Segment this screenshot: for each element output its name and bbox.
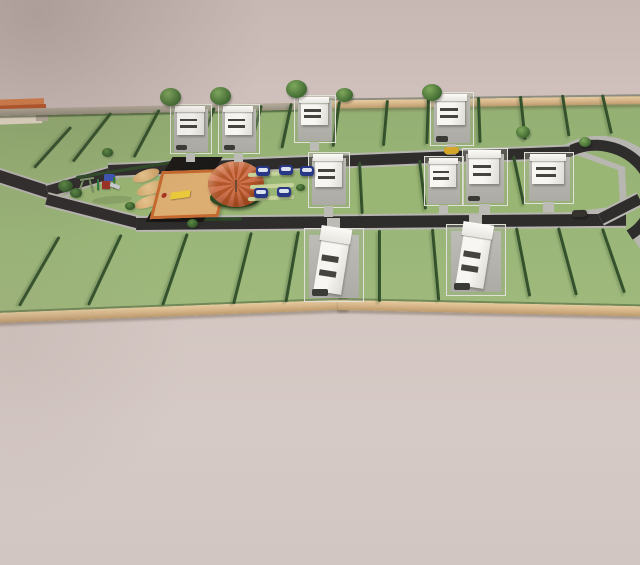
house-window-lower <box>304 115 321 118</box>
house-top-1 <box>170 104 212 154</box>
car-windshield <box>302 168 312 172</box>
bush-5 <box>296 184 305 191</box>
house-window-lower <box>180 125 197 128</box>
house-window-upper <box>536 167 556 170</box>
house-roof <box>313 154 343 161</box>
plot-hedge-21 <box>378 230 381 302</box>
house-mid-4 <box>524 152 574 204</box>
moving-car-yellow <box>444 147 459 155</box>
driveway-car <box>468 196 480 202</box>
house-top-3 <box>294 95 336 143</box>
house-south-1 <box>304 228 364 302</box>
house-mid-3 <box>462 148 508 206</box>
house-body <box>315 156 342 186</box>
play-post-left <box>97 179 99 190</box>
house-window-lower <box>228 125 245 128</box>
parked-car-blue-4 <box>277 187 291 197</box>
house-window-lower <box>473 173 491 176</box>
house-body <box>225 108 252 135</box>
driveway-car <box>224 145 235 150</box>
house-window-lower <box>433 177 449 180</box>
house-body <box>301 99 328 125</box>
bush-1 <box>70 188 82 198</box>
house-roof <box>223 106 253 112</box>
house-window-upper <box>318 169 335 172</box>
parked-car-blue-0 <box>256 166 270 176</box>
house-window-lower <box>320 269 338 278</box>
driveway-car <box>436 136 447 141</box>
house-mid-2 <box>424 156 464 206</box>
tree-1 <box>210 87 231 105</box>
house-body <box>437 96 465 125</box>
umbrella-pole <box>235 180 237 192</box>
sandbox-ball <box>161 193 167 198</box>
house-window-upper <box>322 254 340 263</box>
house-window-lower <box>440 115 457 118</box>
sandbox-bench <box>171 190 191 199</box>
car-windshield <box>279 189 289 193</box>
house-south-2 <box>446 224 506 296</box>
house-top-2 <box>218 104 260 154</box>
tree-4 <box>422 84 442 101</box>
house-roof <box>468 150 501 158</box>
driveway-car <box>454 283 470 290</box>
parked-car-blue-2 <box>300 166 314 176</box>
house-window-upper <box>464 250 482 258</box>
driveway-car <box>176 145 187 150</box>
driveway-car <box>312 289 328 296</box>
tree-0 <box>160 88 181 106</box>
car-windshield <box>281 167 291 171</box>
house-window-upper <box>433 171 449 174</box>
car-windshield <box>256 190 266 194</box>
house-window-upper <box>304 109 321 112</box>
bush-2 <box>102 148 113 157</box>
house-window-upper <box>180 119 197 122</box>
tree-2 <box>286 80 307 98</box>
bush-3 <box>125 202 135 210</box>
house-window-upper <box>473 165 491 168</box>
driveway <box>186 153 195 163</box>
tree-3 <box>336 88 353 102</box>
tree-5 <box>516 126 530 138</box>
house-window-lower <box>318 176 335 179</box>
car-windshield <box>258 168 268 172</box>
scene <box>0 0 640 565</box>
house-window-lower <box>462 264 480 272</box>
house-roof <box>299 97 329 103</box>
house-roof <box>175 106 205 112</box>
moving-car-dark <box>572 210 587 218</box>
driveway <box>543 202 554 212</box>
parked-car-blue-1 <box>279 165 293 175</box>
bush-4 <box>187 219 198 228</box>
house-body <box>469 153 498 184</box>
house-body <box>430 160 456 187</box>
house-window-upper <box>440 108 457 111</box>
tree-6 <box>579 137 591 147</box>
house-window-lower <box>536 174 556 177</box>
house-top-4 <box>430 92 474 146</box>
driveway <box>234 153 243 163</box>
house-body <box>177 108 204 135</box>
house-roof <box>429 158 458 164</box>
driveway <box>310 142 319 151</box>
house-window-upper <box>228 119 245 122</box>
driveway <box>324 206 333 217</box>
parked-car-blue-3 <box>254 188 268 198</box>
driveway <box>439 205 448 215</box>
driveway <box>479 204 489 215</box>
house-body <box>532 156 564 184</box>
house-mid-1 <box>308 152 350 208</box>
house-roof <box>530 154 566 161</box>
